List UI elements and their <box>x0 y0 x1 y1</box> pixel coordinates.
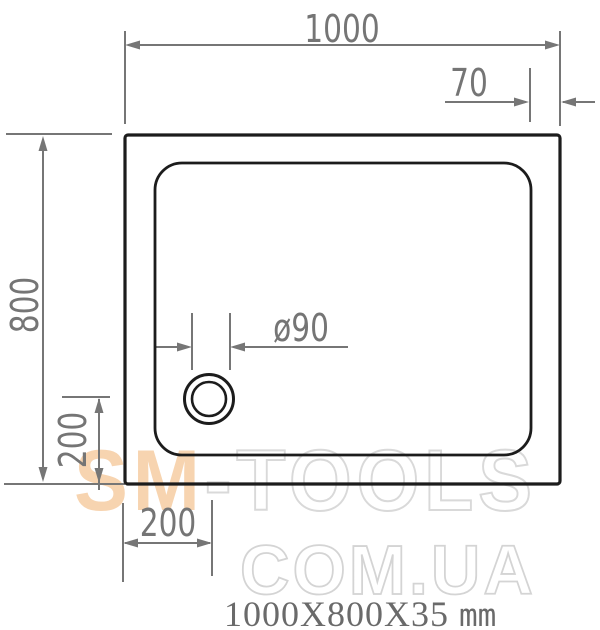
arrow-200-bottom-left-icon <box>123 539 138 548</box>
arrow-200-bottom-right-icon <box>197 539 212 548</box>
arrow-800-up-icon <box>39 136 48 151</box>
tray-outer-edge <box>125 135 560 484</box>
arrow-200-left-up-icon <box>95 398 104 413</box>
drain-inner-circle <box>192 382 226 416</box>
dim-label-offset-left: 200 <box>54 412 92 469</box>
dim-label-offset-bottom: 200 <box>140 504 197 542</box>
technical-drawing-page: SM-TOOLS COM.UA <box>0 0 600 630</box>
arrow-70-right-icon <box>561 98 576 107</box>
dim-label-height: 800 <box>6 277 44 334</box>
dim-label-drain-diameter: ø90 <box>273 309 329 347</box>
size-caption-value: 1000X800X35 <box>224 594 449 630</box>
tray-inner-rim <box>155 163 531 455</box>
arrow-1000-right-icon <box>545 41 560 50</box>
arrow-200-left-down-icon <box>95 468 104 483</box>
size-caption-unit: mm <box>459 598 496 630</box>
arrow-1000-left-icon <box>125 41 140 50</box>
dim-label-rim: 70 <box>450 64 488 102</box>
dimension-arrowheads <box>39 41 577 548</box>
size-caption: 1000X800X35mm <box>224 593 496 630</box>
arrow-800-down-icon <box>39 467 48 482</box>
arrow-drain-right-icon <box>230 343 245 352</box>
arrow-drain-left-icon <box>177 343 192 352</box>
arrow-70-icon <box>514 98 529 107</box>
dim-label-width: 1000 <box>304 10 379 48</box>
tray-outlines <box>125 135 560 484</box>
